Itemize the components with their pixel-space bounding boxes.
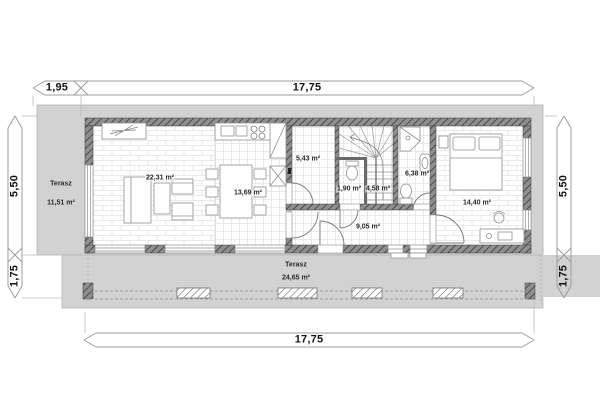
armchair-2	[172, 203, 193, 220]
pantry-area: 5,43 m²	[295, 156, 321, 163]
dim-bottom-total-label: 17,75	[295, 335, 324, 346]
kitchen-dining-area: 13,69 m²	[233, 190, 263, 197]
dim-top	[33, 81, 534, 95]
right-wall-2	[523, 177, 531, 210]
hall-area: 9,05 m²	[355, 224, 381, 231]
wall-living-pantry	[286, 126, 292, 183]
fridge	[270, 166, 286, 186]
wc-area: 1,90 m²	[336, 186, 362, 193]
coffee-table	[154, 183, 170, 214]
sofa	[124, 177, 151, 223]
washbasin	[420, 154, 430, 172]
dim-right-terrace-label: 1,75	[559, 265, 570, 287]
staircase-area: 4,58 m²	[365, 186, 391, 193]
pantry-floor	[292, 126, 335, 204]
entry-sill-2	[410, 253, 426, 258]
nightstand	[439, 136, 448, 148]
right-wall-1	[523, 126, 531, 138]
left-wall-upper	[85, 126, 93, 165]
bath-toilet	[400, 184, 412, 204]
armchair-1	[172, 179, 193, 194]
desk	[480, 229, 524, 243]
dim-left-main-label: 5,50	[10, 175, 21, 197]
dim-top-total-label: 17,75	[293, 83, 322, 94]
bathroom-area: 6,38 m²	[404, 171, 430, 178]
terrace-bottom-name: Terasz	[284, 262, 308, 269]
left-window	[85, 165, 93, 237]
floor-plan: 1,95 17,75 17,75 5,50 1,75 5,50 1,75 Ter…	[0, 0, 600, 400]
dim-left-terrace-label: 1,75	[10, 265, 21, 287]
sink-icon	[221, 126, 247, 136]
wc-toilet	[346, 161, 358, 180]
living-room-area: 22,31 m²	[145, 175, 175, 182]
bedroom-area: 14,40 m²	[462, 200, 492, 207]
dim-right-main-label: 5,50	[559, 175, 570, 197]
right-window-1	[523, 138, 531, 177]
entry-sill-1	[391, 253, 408, 258]
top-wall	[85, 118, 531, 126]
dim-top-terrace-label: 1,95	[46, 83, 68, 94]
wall-bedroom	[430, 126, 436, 215]
bed	[450, 134, 502, 190]
terrace-bottom-area: 24,65 m²	[281, 275, 311, 282]
terrace-left-area: 11,51 m²	[46, 200, 76, 207]
right-window-2	[523, 210, 531, 230]
corner-cabinet	[270, 123, 286, 158]
terrace-left-name: Terasz	[49, 181, 73, 188]
stair-wall-right	[393, 126, 398, 204]
wall-hall-2	[360, 204, 413, 210]
wall-hall-1	[286, 204, 340, 210]
sideboard	[102, 123, 146, 139]
wall-marker	[288, 168, 291, 174]
wc-wall-right	[364, 157, 367, 204]
wc-wall-top	[335, 157, 367, 160]
